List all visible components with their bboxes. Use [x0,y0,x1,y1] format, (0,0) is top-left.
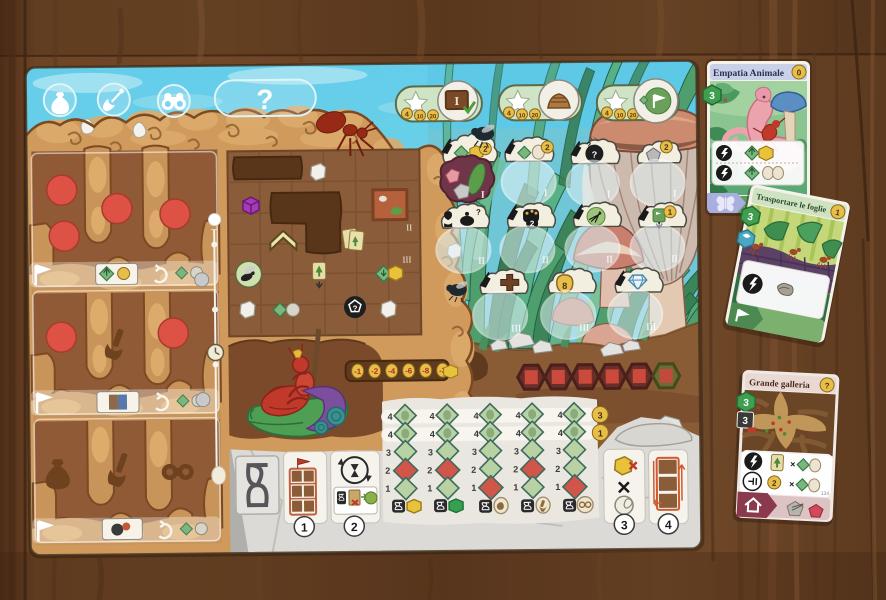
svg-text:3: 3 [428,447,433,457]
svg-text:4: 4 [430,429,435,439]
svg-text:4: 4 [665,518,672,532]
svg-text:4: 4 [388,412,393,422]
svg-text:4: 4 [605,110,609,117]
svg-text:II: II [478,256,485,267]
svg-text:3: 3 [709,91,715,102]
svg-text:II: II [671,254,678,265]
svg-text:3: 3 [514,446,519,456]
svg-text:2: 2 [427,465,432,475]
svg-text:1: 1 [471,483,476,493]
svg-text:3: 3 [598,410,603,420]
svg-text:20: 20 [630,113,637,119]
svg-text:0: 0 [797,69,802,78]
svg-text:1: 1 [598,428,603,438]
svg-text:Empatia Animale: Empatia Animale [713,69,784,79]
svg-text:?: ? [592,150,598,160]
svg-text:1: 1 [513,482,518,492]
svg-text:?: ? [256,84,273,115]
svg-text:-6: -6 [405,366,413,375]
svg-text:3: 3 [621,518,628,532]
svg-text:10: 10 [417,114,424,120]
svg-text:4: 4 [430,411,435,421]
svg-text:-2: -2 [371,367,379,376]
svg-text:3: 3 [472,447,477,457]
svg-text:III: III [402,254,411,264]
svg-text:-4: -4 [388,367,396,376]
svg-text:I: I [607,189,610,200]
svg-text:2: 2 [555,464,560,474]
svg-text:2: 2 [664,143,669,152]
svg-text:?: ? [586,141,591,150]
svg-text:I: I [544,188,547,199]
svg-text:×: × [756,403,761,412]
svg-text:I: I [673,189,676,200]
svg-text:2: 2 [385,466,390,476]
svg-text:?: ? [476,208,481,217]
svg-text:2: 2 [471,465,476,475]
svg-text:I: I [454,94,459,108]
svg-text:10: 10 [617,113,624,119]
svg-text:2: 2 [351,520,358,534]
svg-text:?: ? [353,304,358,313]
svg-text:×: × [789,479,795,489]
svg-text:4: 4 [405,112,409,119]
svg-text:134: 134 [821,491,830,497]
svg-text:4: 4 [558,428,563,438]
svg-text:II: II [406,222,412,232]
svg-text:4: 4 [474,429,479,439]
svg-text:1: 1 [301,521,308,535]
svg-text:-1: -1 [354,367,362,376]
svg-text:4: 4 [474,411,479,421]
svg-text:?: ? [824,381,829,390]
svg-text:×: × [790,459,796,469]
svg-text:II: II [542,255,549,266]
svg-text:3: 3 [386,448,391,458]
svg-text:3: 3 [742,416,749,427]
svg-text:4: 4 [516,428,521,438]
svg-text:20: 20 [532,113,539,119]
svg-text:II: II [606,254,613,265]
svg-text:1: 1 [427,483,432,493]
svg-text:2: 2 [545,143,550,152]
svg-text:4: 4 [558,410,563,420]
svg-text:III: III [579,323,589,334]
svg-text:III: III [511,323,521,334]
svg-text:×: × [723,96,728,105]
svg-text:4: 4 [516,410,521,420]
svg-text:1: 1 [555,482,560,492]
svg-text:4: 4 [388,430,393,440]
svg-text:3: 3 [556,446,561,456]
svg-text:1: 1 [668,208,673,217]
svg-text:4: 4 [507,110,511,117]
svg-text:III: III [646,322,656,333]
svg-text:20: 20 [430,114,437,120]
svg-text:1: 1 [385,484,390,494]
svg-text:-8: -8 [422,366,430,375]
svg-text:I: I [481,190,485,201]
svg-text:2: 2 [513,464,518,474]
svg-text:8: 8 [562,281,567,291]
svg-text:10: 10 [519,113,526,119]
svg-text:3: 3 [743,398,750,409]
